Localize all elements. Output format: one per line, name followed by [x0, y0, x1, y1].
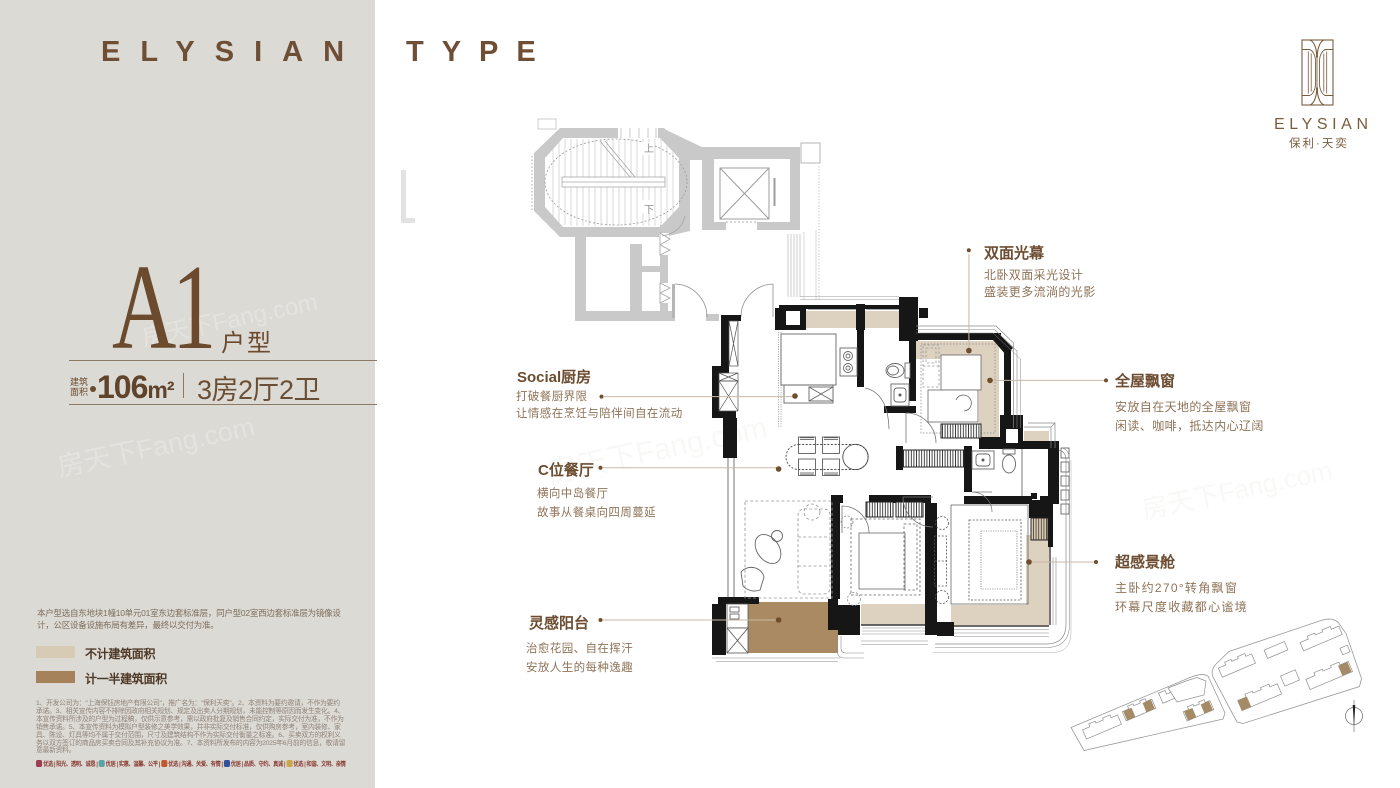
svg-text:上: 上: [644, 143, 654, 155]
svg-text:下: 下: [644, 205, 654, 216]
